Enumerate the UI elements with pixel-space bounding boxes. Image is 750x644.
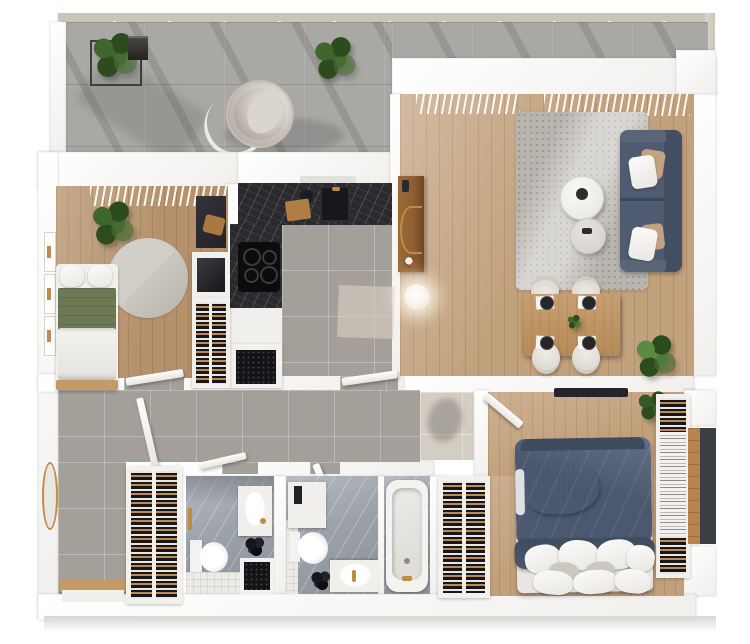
bath2-vanity-item	[294, 486, 302, 504]
bath1-towel-bar	[188, 508, 192, 530]
plate-4	[582, 336, 596, 350]
tub-room	[384, 476, 430, 594]
wall-terrace-left	[50, 22, 66, 154]
terrace-lantern	[128, 36, 148, 60]
terrace-plant-2	[310, 34, 358, 84]
plate-2	[582, 296, 596, 310]
bath2-plant	[308, 570, 334, 592]
wall-corner-top-right	[676, 50, 716, 94]
master-rack-right-middle	[660, 432, 686, 536]
entry-corridor-floor	[58, 462, 126, 594]
kitchen-sink	[320, 186, 350, 222]
burner-4	[260, 266, 278, 284]
floor-plan	[0, 0, 750, 644]
wall-top-left-band	[38, 152, 240, 190]
window-handle-1	[47, 246, 51, 258]
wall-living-top	[392, 58, 716, 96]
tub-drain	[404, 558, 410, 564]
plate-1	[540, 296, 554, 310]
terrace-floor-top-strip	[392, 22, 708, 60]
sofa-backrest	[664, 130, 682, 272]
hall-floor	[58, 390, 420, 462]
sofa	[618, 128, 684, 274]
bed2-foot-board	[56, 380, 118, 390]
living-blinds-left	[416, 94, 520, 114]
tub-faucet	[402, 576, 412, 581]
living-palm	[632, 332, 678, 382]
side-niche-wood	[688, 428, 700, 544]
console-gold-arc	[400, 206, 422, 254]
kitchen-counter-top	[238, 183, 392, 225]
bath1-toilet-bowl	[200, 542, 228, 572]
kitchen-cabinet	[230, 308, 282, 344]
console-flower	[404, 256, 416, 268]
bath1-tiled-bench	[186, 572, 240, 594]
burner-1	[243, 248, 261, 266]
bedroom2-bed	[56, 262, 118, 392]
bath1-shower-tray	[244, 562, 270, 590]
bath1-faucet	[260, 518, 266, 524]
master-rack-right-bottom	[660, 536, 686, 574]
oven-glass	[236, 350, 276, 384]
wall-bath-partition	[274, 476, 286, 598]
window-handle-3	[47, 330, 51, 342]
coffee-table-decor	[576, 188, 588, 200]
sofa-armrest-top	[620, 130, 666, 142]
wall-living-right	[692, 92, 716, 376]
bed-duvet-top-edge	[521, 437, 645, 451]
sofa-pillow-white-1	[628, 154, 659, 190]
burner-2	[262, 250, 277, 265]
master-rack-right-top	[660, 398, 686, 432]
master-bed	[513, 437, 658, 595]
console-bottle	[402, 180, 409, 192]
bathroom2	[286, 476, 378, 594]
plate-3	[540, 336, 554, 350]
entry-bench-front	[62, 590, 124, 602]
entry-mirror	[42, 462, 58, 530]
bath2-toilet-bowl	[298, 532, 328, 564]
bath2-faucet	[352, 570, 356, 582]
kitchen-faucet	[332, 187, 340, 191]
closet-divider	[152, 471, 156, 599]
bedroom2-round-rug	[108, 238, 188, 318]
sofa-armrest-bottom	[620, 260, 666, 272]
bedroom2-wardrobe-divider	[209, 302, 212, 384]
sofa-pillow-white-2	[627, 226, 658, 262]
kitchen-mat	[337, 285, 395, 339]
table-centerpiece	[566, 314, 582, 330]
burner-3	[244, 268, 259, 283]
doorway-bath1	[222, 462, 258, 474]
side-niche-panel	[700, 428, 716, 544]
wall-tv	[554, 388, 628, 397]
master-wardrobe-left-divider	[462, 481, 466, 593]
hanging-chair	[204, 78, 290, 156]
window-handle-2	[47, 288, 51, 300]
bed2-pillow-2	[87, 264, 113, 288]
sphere-floor-lamp	[404, 284, 430, 310]
bedroom2-fireplace	[197, 258, 225, 292]
slab-shadow	[44, 616, 716, 632]
bathtub-basin	[392, 488, 422, 580]
coffee-table-small	[570, 218, 606, 254]
bed-sheet-fold	[515, 469, 525, 515]
bath1-plant	[242, 536, 268, 558]
railing-shadow-stripes	[392, 22, 708, 60]
bed2-green-blanket	[58, 288, 116, 330]
sofa-seat-divider	[620, 198, 666, 201]
cutting-board	[285, 198, 312, 221]
bed2-duvet	[58, 328, 116, 380]
coffee-table-small-decor	[582, 228, 592, 234]
bathroom1	[186, 476, 274, 594]
